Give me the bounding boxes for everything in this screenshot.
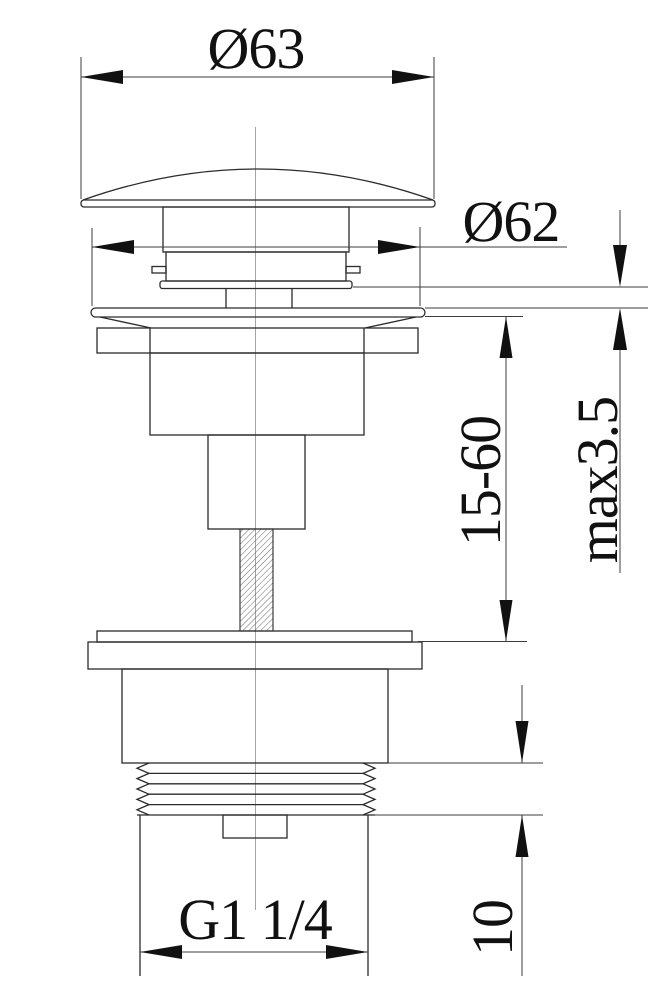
arrow-right-icon: [326, 945, 368, 959]
arrow-right-icon: [392, 70, 434, 84]
dimension-thread-size: G1 1/4: [140, 887, 368, 959]
right-guide-pin: [346, 267, 360, 274]
arrow-up-icon: [613, 308, 627, 350]
arrow-right-icon: [378, 240, 420, 254]
arrow-left-icon: [81, 70, 123, 84]
basin-waste-dimension-drawing: Ø63 Ø62 max3.5 15-60: [0, 0, 656, 1000]
arrow-up-icon: [500, 317, 513, 359]
arrow-left-icon: [92, 240, 134, 254]
narrow-body-section: [208, 435, 305, 529]
arrow-up-icon: [516, 815, 529, 857]
flange-diameter-label: Ø62: [463, 189, 560, 254]
arrow-down-icon: [500, 600, 513, 642]
max-thickness-label: max3.5: [565, 397, 630, 563]
cap-skirt-plate: [160, 281, 352, 289]
male-thread-section: [137, 763, 375, 815]
upper-body-section: [150, 353, 364, 435]
clamping-range-label: 15-60: [448, 416, 513, 546]
dimension-cap-diameter: Ø63: [81, 16, 434, 199]
cap-dome: [81, 169, 435, 207]
thread-length-label: 10: [460, 900, 525, 956]
dimension-clamping-range: 15-60: [418, 317, 527, 642]
dimension-thread-length: 10: [375, 685, 543, 976]
technical-drawing-canvas: Ø63 Ø62 max3.5 15-60: [0, 0, 656, 1000]
threaded-adjust-rod: [240, 529, 273, 631]
thread-size-label: G1 1/4: [178, 887, 333, 952]
outlet-notch: [223, 815, 287, 838]
lower-body-flange-plates: [88, 631, 422, 669]
arrow-left-icon: [140, 945, 182, 959]
mounting-nut: [97, 328, 418, 353]
left-guide-pin: [152, 267, 166, 274]
top-flange: [91, 308, 425, 328]
cap-diameter-label: Ø63: [208, 16, 305, 81]
cap-body-cylinder: [152, 207, 360, 308]
arrow-down-icon: [516, 721, 529, 763]
arrow-down-icon: [613, 245, 627, 287]
lower-body-block: [122, 669, 388, 763]
